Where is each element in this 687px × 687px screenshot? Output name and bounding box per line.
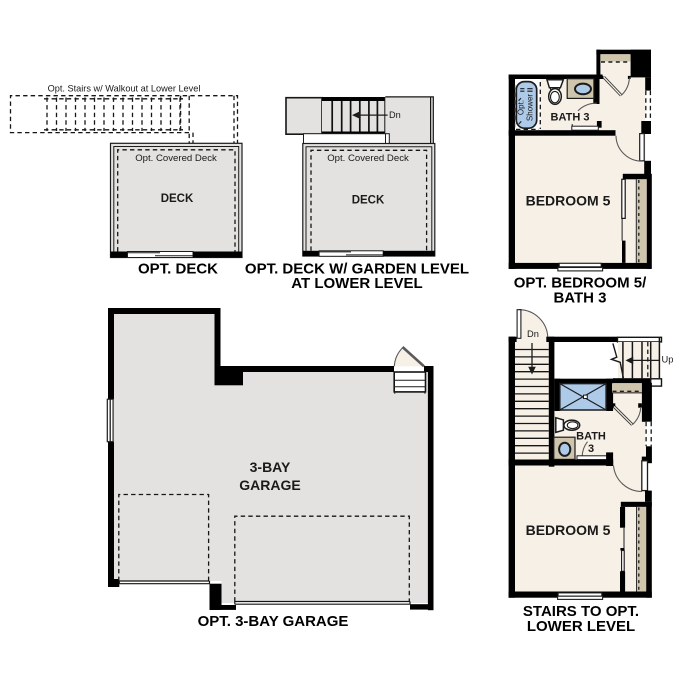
svg-text:GARAGE: GARAGE bbox=[239, 477, 300, 493]
svg-text:BATH: BATH bbox=[576, 431, 606, 443]
svg-text:Opt. Covered Deck: Opt. Covered Deck bbox=[327, 153, 409, 164]
svg-text:Dn: Dn bbox=[389, 110, 401, 120]
svg-text:Dn: Dn bbox=[527, 329, 539, 339]
svg-text:BEDROOM 5: BEDROOM 5 bbox=[526, 193, 611, 209]
svg-text:Opt. Stairs w/ Walkout at Lowe: Opt. Stairs w/ Walkout at Lower Level bbox=[48, 84, 201, 94]
svg-text:OPT. DECK: OPT. DECK bbox=[138, 261, 218, 278]
svg-text:3-BAY: 3-BAY bbox=[250, 459, 291, 475]
svg-text:Opt.: Opt. bbox=[516, 100, 525, 115]
svg-text:BATH 3: BATH 3 bbox=[551, 112, 590, 124]
svg-text:LOWER LEVEL: LOWER LEVEL bbox=[527, 618, 635, 635]
svg-text:DECK: DECK bbox=[352, 195, 385, 207]
svg-text:DECK: DECK bbox=[161, 193, 194, 205]
svg-text:3: 3 bbox=[588, 443, 594, 455]
svg-text:Shower: Shower bbox=[526, 94, 535, 121]
svg-text:AT LOWER LEVEL: AT LOWER LEVEL bbox=[291, 275, 422, 292]
svg-text:BEDROOM 5: BEDROOM 5 bbox=[526, 522, 611, 538]
svg-text:Opt. Covered Deck: Opt. Covered Deck bbox=[135, 153, 217, 164]
svg-text:OPT. 3-BAY GARAGE: OPT. 3-BAY GARAGE bbox=[198, 613, 349, 630]
svg-text:BATH 3: BATH 3 bbox=[553, 289, 606, 306]
svg-text:Up: Up bbox=[662, 355, 674, 365]
